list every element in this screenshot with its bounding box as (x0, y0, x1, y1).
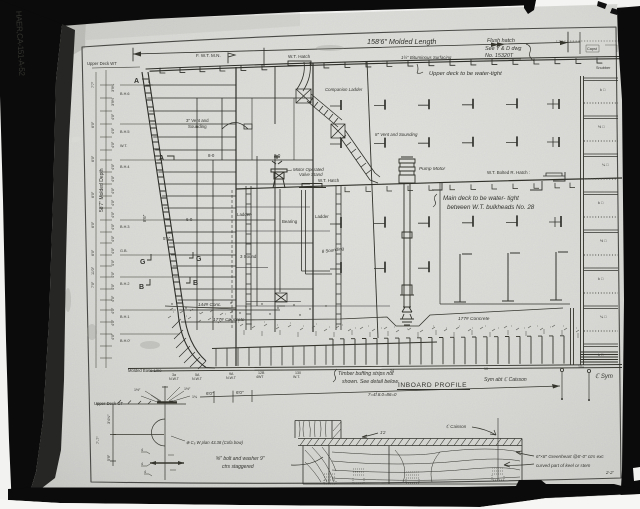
svg-text:7′0″: 7′0″ (91, 281, 95, 288)
svg-text:W.T. Hatch: W.T. Hatch (288, 54, 311, 59)
svg-text:6″×8″ Greenheart @6′-0″ ctrs: 6″×8″ Greenheart @6′-0″ ctrs exc (536, 454, 604, 459)
svg-text:177# Concrete: 177# Concrete (458, 316, 490, 322)
svg-text:shown. See detail below.: shown. See detail below. (342, 379, 399, 385)
svg-text:3′9½: 3′9½ (111, 97, 115, 106)
svg-text:⊕ C₅ W plan 43.38 (Cofa bow): ⊕ C₅ W plan 43.38 (Cofa bow) (186, 440, 243, 445)
svg-text:6′0″: 6′0″ (91, 249, 95, 256)
svg-text:Ladder-: Ladder- (237, 212, 253, 217)
svg-text:6′0″: 6′0″ (236, 390, 244, 395)
svg-text:curved part of keel or stem: curved part of keel or stem (536, 463, 591, 468)
svg-text:8″ Vent and Sounding: 8″ Vent and Sounding (375, 132, 418, 137)
svg-text:3 Sound: 3 Sound (240, 254, 257, 259)
svg-text:Timber buffing strips not: Timber buffing strips not (338, 371, 394, 377)
svg-text:4: 4 (141, 448, 143, 452)
svg-text:INBOARD PROFILE: INBOARD PROFILE (398, 382, 467, 389)
svg-text:k □: k □ (598, 353, 604, 357)
svg-text:Upper Deck GT: Upper Deck GT (94, 401, 124, 406)
svg-text:Companion Ladder: Companion Ladder (325, 87, 363, 92)
svg-text:⅝″ bolt and washer 9″: ⅝″ bolt and washer 9″ (216, 456, 265, 462)
svg-text:4′0″: 4′0″ (111, 271, 115, 278)
svg-text:A: A (134, 78, 139, 85)
svg-text:½ □: ½ □ (600, 239, 607, 243)
svg-text:ℂ Sym: ℂ Sym (595, 373, 613, 380)
svg-text:Sym abt ℂ Caisson: Sym abt ℂ Caisson (484, 377, 527, 383)
svg-text:1½″: 1½″ (184, 387, 191, 391)
svg-text:W.T.: W.T. (120, 144, 127, 148)
svg-text:W.T. Hatch: W.T. Hatch (318, 178, 340, 183)
svg-text:Bearing: Bearing (282, 219, 298, 224)
svg-text:8-0: 8-0 (208, 153, 215, 158)
svg-text:10=: 10= (578, 365, 584, 369)
svg-text:6-0: 6-0 (186, 217, 193, 222)
svg-text:11′0″: 11′0″ (91, 266, 95, 275)
svg-text:¼ □: ¼ □ (602, 163, 609, 167)
svg-text:4′0″: 4′0″ (111, 319, 115, 326)
svg-text:Capst: Capst (587, 47, 598, 51)
svg-text:B.H.2: B.H.2 (120, 282, 130, 286)
svg-text:½ □: ½ □ (598, 125, 605, 129)
svg-text:Main deck to be water- tight: Main deck to be water- tight (443, 195, 519, 202)
svg-text:4′0″: 4′0″ (111, 333, 115, 340)
svg-text:4WT: 4WT (256, 375, 264, 379)
svg-text:Sounding: Sounding (188, 124, 207, 129)
svg-text:177# Concrete: 177# Concrete (213, 317, 245, 323)
svg-text:7′-7″: 7′-7″ (96, 436, 100, 444)
svg-text:See Y & D dwg: See Y & D dwg (485, 46, 521, 52)
svg-text:N.W.T: N.W.T (169, 377, 180, 381)
svg-text:W.T.: W.T. (293, 375, 300, 379)
svg-text:6′0″: 6′0″ (91, 121, 95, 128)
svg-text:ctrs staggered: ctrs staggered (222, 464, 254, 470)
svg-text:3″ Vent and: 3″ Vent and (186, 118, 209, 123)
svg-text:4′0″: 4′0″ (111, 259, 115, 266)
svg-text:144# Conc.: 144# Conc. (198, 302, 222, 307)
svg-text:Upper deck to be water-tight: Upper deck to be water-tight (429, 71, 502, 77)
svg-text:1½″ Bituminous Surfacing: 1½″ Bituminous Surfacing (401, 55, 452, 60)
svg-text:4′0″: 4′0″ (111, 223, 115, 230)
svg-text:158′6″ Molded Length: 158′6″ Molded Length (367, 37, 436, 46)
svg-text:G: G (140, 259, 146, 266)
svg-text:4′0″: 4′0″ (111, 211, 115, 218)
svg-text:B: B (193, 280, 198, 287)
svg-text:B: B (139, 284, 144, 291)
svg-text:k □: k □ (598, 201, 604, 205)
svg-text:4′0″: 4′0″ (111, 113, 115, 120)
svg-text:4: 4 (141, 462, 143, 466)
svg-text:4′0″: 4′0″ (111, 283, 115, 290)
svg-text:B.H.5: B.H.5 (120, 130, 130, 134)
svg-text:5′6″: 5′6″ (163, 236, 171, 241)
svg-text:G: G (196, 256, 202, 263)
svg-text:W.T. Bolted R. Hatch :: W.T. Bolted R. Hatch : (487, 170, 530, 175)
svg-text:4′0″: 4′0″ (111, 247, 115, 254)
svg-text:B.H.3: B.H.3 (120, 225, 130, 229)
svg-text:No. 15320T: No. 15320T (485, 53, 514, 59)
svg-text:8′6″: 8′6″ (142, 214, 147, 222)
svg-text:k □: k □ (598, 277, 604, 281)
svg-text:B.H.4: B.H.4 (120, 165, 130, 169)
svg-text:4′0″: 4′0″ (111, 127, 115, 134)
svg-text:Flush hatch: Flush hatch (487, 38, 515, 44)
svg-text:4′0″: 4′0″ (111, 199, 115, 206)
svg-text:6′0″: 6′0″ (91, 155, 95, 162)
svg-text:G.B.: G.B. (120, 249, 128, 253)
svg-text:5′9″: 5′9″ (107, 454, 111, 461)
svg-text:10: 10 (484, 367, 488, 371)
svg-text:6′0″: 6′0″ (206, 391, 214, 396)
svg-text:3′9¾: 3′9¾ (111, 83, 115, 92)
svg-text:F. W.T. M.N.: F. W.T. M.N. (196, 53, 221, 58)
svg-text:Upper Deck WT: Upper Deck WT (87, 61, 117, 66)
svg-text:7′7″: 7′7″ (91, 81, 95, 88)
svg-text:B.H.0′: B.H.0′ (120, 339, 130, 343)
svg-text:7=4f.8.0=86=0: 7=4f.8.0=86=0 (368, 392, 397, 397)
svg-text:N.W.T: N.W.T (226, 376, 237, 380)
svg-text:4′0″: 4′0″ (111, 187, 115, 194)
svg-text:B.H.6: B.H.6 (120, 92, 130, 96)
svg-text:between W.T. bulkheads No.: between W.T. bulkheads No. 28 (447, 204, 535, 211)
svg-text:Molded Base Line: Molded Base Line (128, 368, 162, 373)
svg-text:58′7″ Molded Depth: 58′7″ Molded Depth (99, 168, 105, 212)
svg-text:4′0″: 4′0″ (111, 295, 115, 302)
svg-text:4′0″: 4′0″ (111, 175, 115, 182)
svg-text:6′0″: 6′0″ (91, 191, 95, 198)
svg-text:N.W.T: N.W.T (192, 377, 203, 381)
svg-text:4′0″: 4′0″ (111, 141, 115, 148)
svg-text:Ladder: Ladder (315, 214, 329, 219)
svg-text:B.H.1: B.H.1 (120, 315, 130, 319)
svg-text:6′0″: 6′0″ (91, 221, 95, 228)
svg-text:Snubber: Snubber (596, 66, 611, 70)
svg-text:4′0″: 4′0″ (111, 307, 115, 314)
svg-text:4: 4 (144, 470, 146, 474)
svg-text:4′0″: 4′0″ (111, 235, 115, 242)
svg-text:Pump Motor: Pump Motor (419, 166, 446, 172)
svg-text:1′2: 1′2 (380, 430, 386, 435)
svg-text:3′4⅝″: 3′4⅝″ (107, 414, 111, 424)
svg-text:2-2′: 2-2′ (605, 470, 614, 475)
svg-text:¼ □: ¼ □ (600, 315, 607, 319)
svg-text:A: A (159, 155, 164, 162)
svg-text:1½″: 1½″ (134, 388, 141, 392)
svg-text:ℂ Caisson: ℂ Caisson (446, 424, 467, 429)
svg-text:k □: k □ (600, 88, 606, 92)
svg-text:4′0″: 4′0″ (111, 163, 115, 170)
svg-text:Valve Stand: Valve Stand (299, 172, 323, 177)
